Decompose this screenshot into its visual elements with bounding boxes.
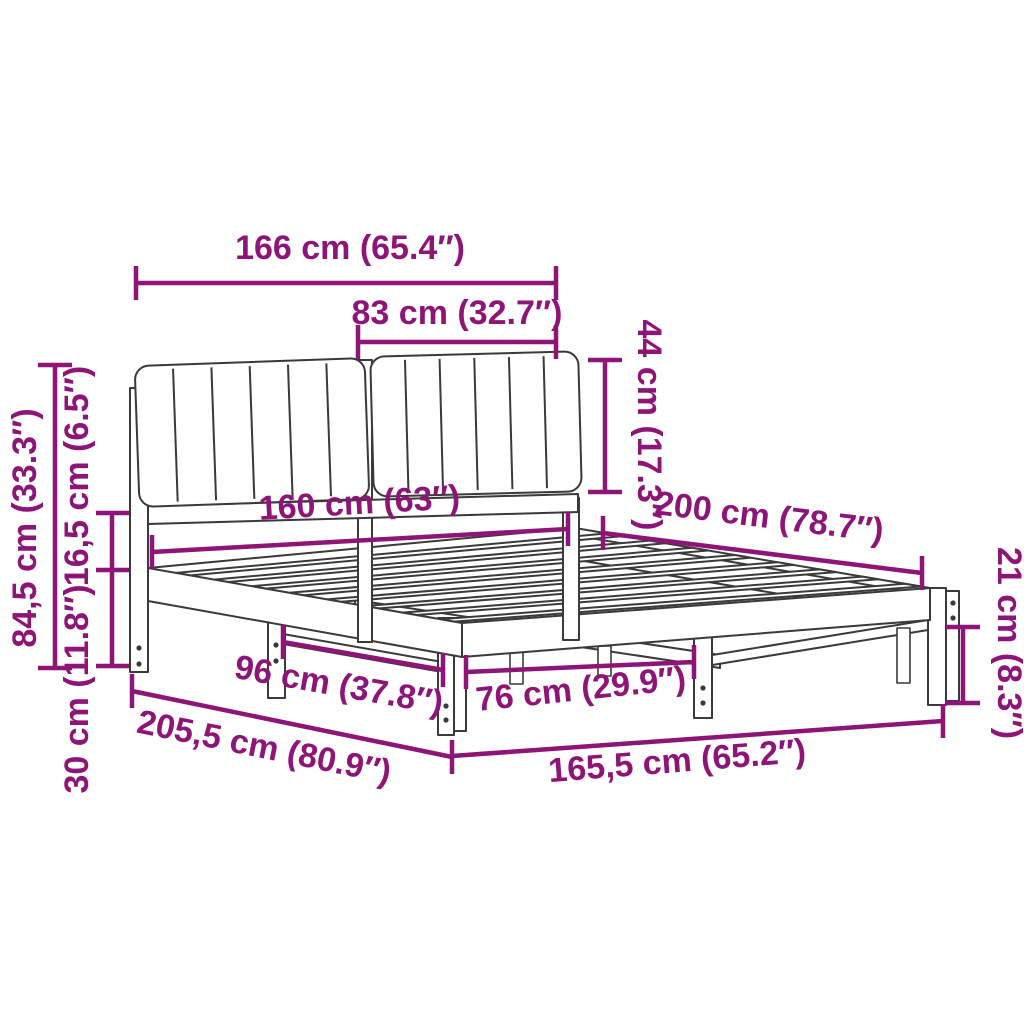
dim-label-headboard-total-width: 166 cm (65.4″) [235, 229, 465, 267]
dim-label-underbed-clearance: 21 cm (8.3″) [990, 547, 1024, 739]
dim-headboard-total-width: 166 cm (65.4″) [136, 229, 556, 300]
dim-cushion-width: 83 cm (32.7″) [352, 294, 563, 359]
dim-label-cushion-width: 83 cm (32.7″) [352, 294, 563, 332]
dim-label-total-height: 84,5 cm (33.3″) [6, 408, 44, 647]
headboard-cushion-right [370, 351, 582, 496]
dim-label-headboard-leg-height: 30 cm (11.8″) [58, 584, 96, 793]
bed-dimension-drawing: 166 cm (65.4″) 83 cm (32.7″) 44 cm (17.3… [0, 0, 1024, 1024]
dim-rail-height: 16,5 cm (6.5″) 30 cm (11.8″) [58, 366, 129, 794]
headboard-right-post [563, 498, 579, 640]
dimension-diagram: 166 cm (65.4″) 83 cm (32.7″) 44 cm (17.3… [0, 0, 1024, 1024]
dim-label-bed-length: 200 cm (78.7″) [653, 484, 886, 550]
dim-label-rail-height: 16,5 cm (6.5″) [58, 366, 96, 586]
